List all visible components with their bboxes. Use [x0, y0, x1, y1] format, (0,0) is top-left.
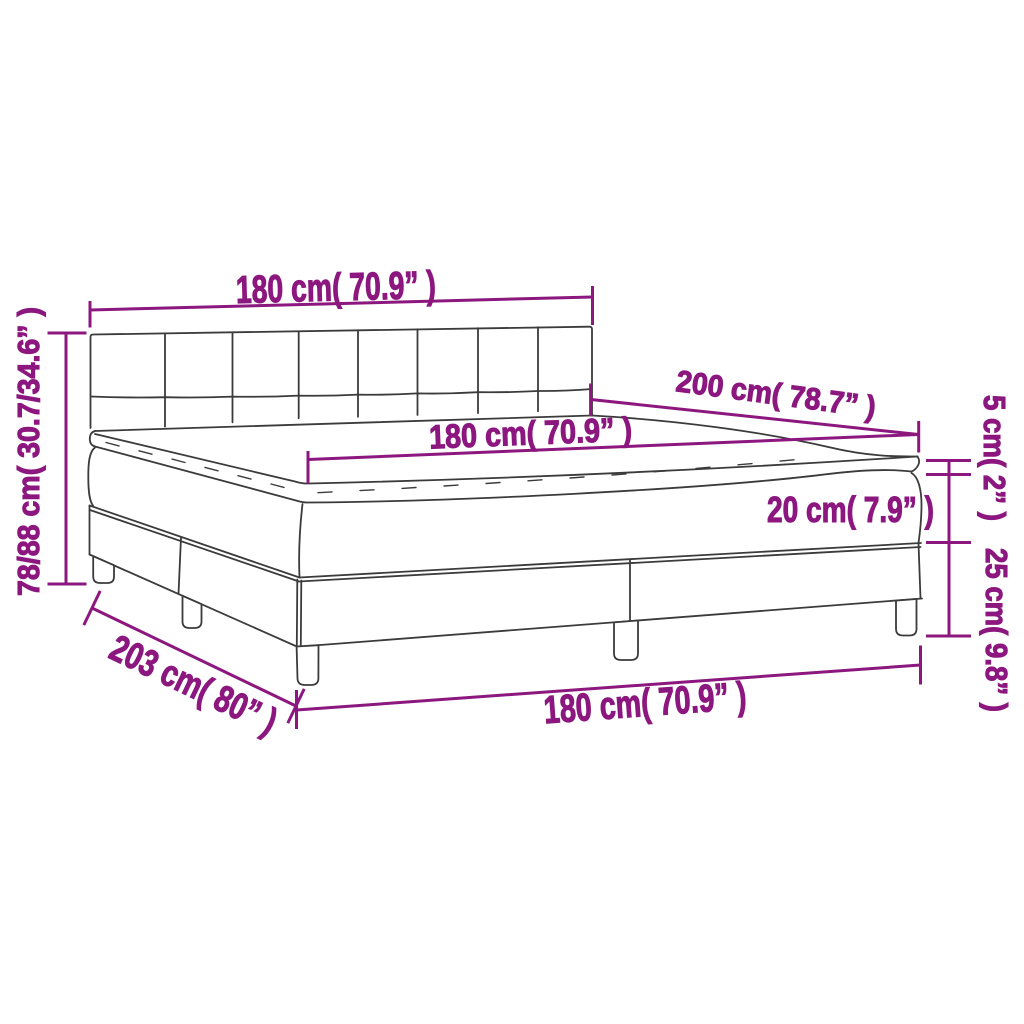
- svg-text:180 cm( 70.9” ): 180 cm( 70.9” ): [542, 675, 748, 733]
- svg-text:200 cm( 78.7” ): 200 cm( 78.7” ): [674, 364, 878, 424]
- svg-text:78/88 cm( 30.7/34.6” ): 78/88 cm( 30.7/34.6” ): [11, 307, 46, 596]
- svg-text:25 cm( 9.8” ): 25 cm( 9.8” ): [979, 548, 1013, 712]
- svg-text:20 cm( 7.9” ): 20 cm( 7.9” ): [767, 489, 934, 530]
- svg-text:203 cm( 80” ): 203 cm( 80” ): [104, 626, 284, 742]
- svg-text:5 cm( 2” ): 5 cm( 2” ): [977, 395, 1011, 521]
- svg-text:180 cm( 70.9” ): 180 cm( 70.9” ): [428, 411, 632, 456]
- svg-text:180 cm( 70.9” ): 180 cm( 70.9” ): [235, 264, 436, 312]
